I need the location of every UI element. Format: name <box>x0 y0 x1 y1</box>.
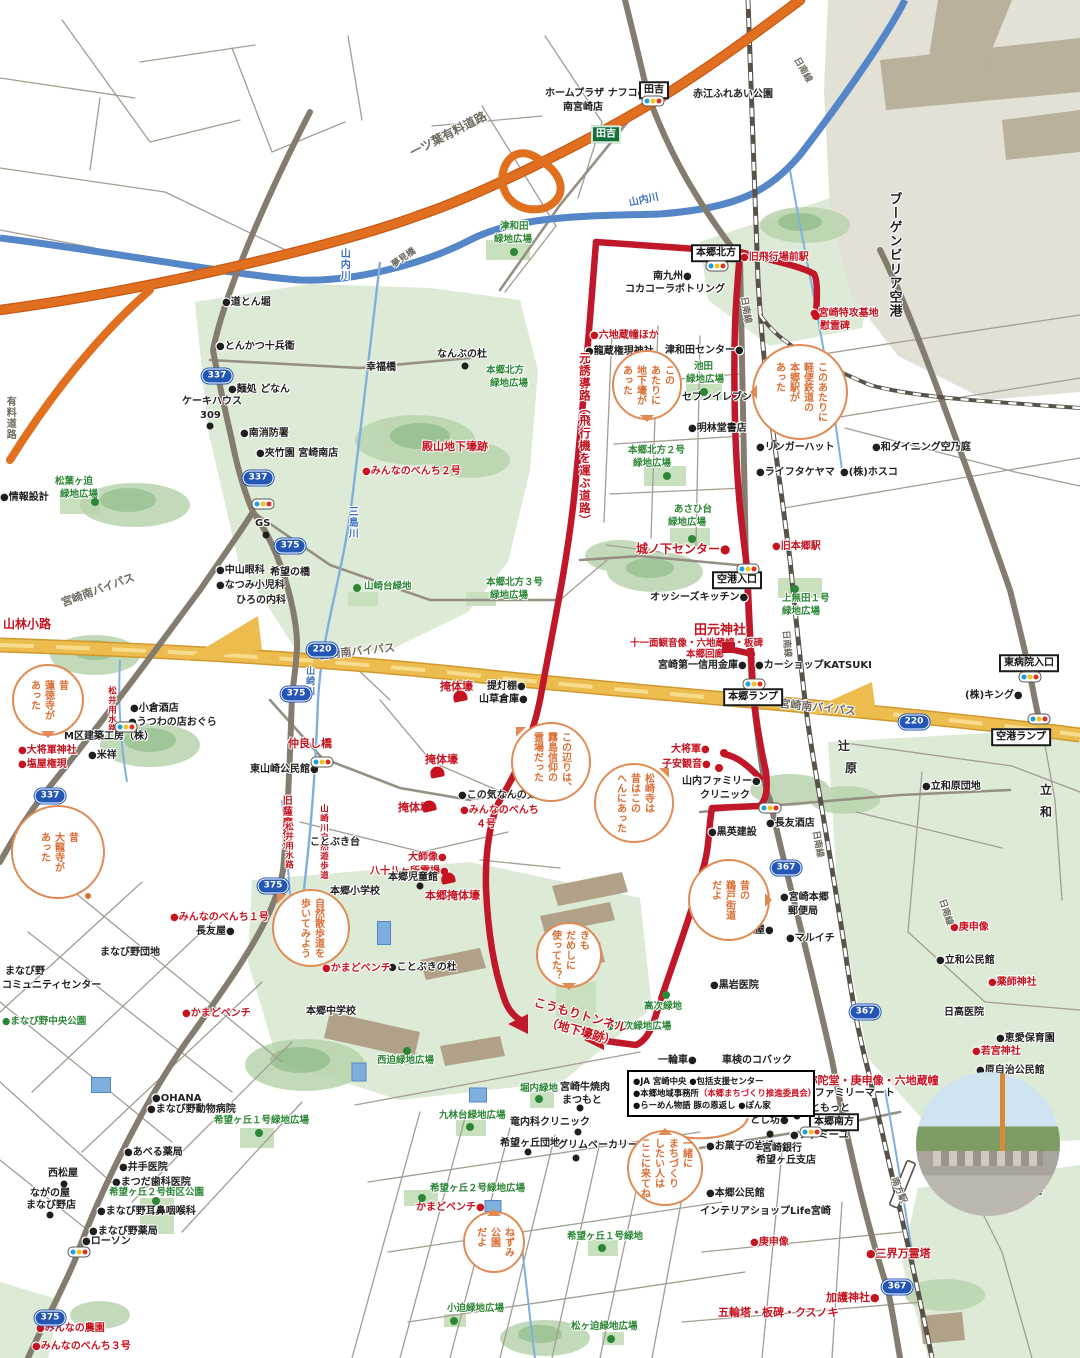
route-shield: 367 <box>771 861 802 876</box>
map-label: ●中山眼科 <box>216 565 265 576</box>
map-label: ●恵愛保育園 <box>996 1033 1055 1044</box>
annotation-text: 昔大龍寺があった <box>37 832 80 872</box>
map-label: ●なつみ小児科 <box>216 580 285 591</box>
map-label: グリムベーカリー <box>558 1140 638 1151</box>
map-label: ●大将軍神社 <box>18 745 77 756</box>
poi-dot <box>61 1181 68 1188</box>
map-label: 本郷中学校 <box>306 1006 356 1017</box>
map-label: 山草倉庫● <box>479 694 528 705</box>
map-label: 宮崎南バイパス <box>779 698 857 718</box>
map-label: かまどベンチ● <box>416 1202 485 1213</box>
map-label: ●塩屋権現 <box>18 759 67 770</box>
annotation-bubble: ねずみ公園だよ <box>463 1211 525 1273</box>
annotation-text: この辺りは、霧島信仰の霊場だった <box>530 732 573 792</box>
map-label: ４号 <box>476 819 496 830</box>
route-shield: 337 <box>202 369 233 384</box>
traffic-signal-icon <box>737 564 760 575</box>
map-label: 希望ヶ丘２号緑地広場 <box>430 1184 525 1195</box>
route-poi-dot <box>812 312 820 320</box>
traffic-signal-icon <box>68 1247 91 1258</box>
map-label: 本郷小学校 <box>330 886 380 897</box>
map-label: ●米祥 <box>88 750 117 761</box>
park-dot <box>152 1197 160 1205</box>
map-label: ●リンガーハット <box>756 442 835 453</box>
traffic-signal-icon <box>252 499 275 510</box>
park-dot <box>663 472 671 480</box>
annotation-pointer <box>640 415 654 429</box>
map-label: 希望ヶ丘１号緑地 <box>567 1232 643 1243</box>
map-label: 宮崎第一信用金庫● <box>658 660 747 671</box>
park-dot <box>353 584 361 592</box>
hangar-ruin-icon <box>429 765 445 779</box>
map-label: コミュニティセンター <box>2 980 101 991</box>
legend-line: ●らーめん物語 豚の恩返し ●ぽん家 <box>633 1099 809 1111</box>
annotation-bubble: 昔大龍寺があった <box>11 805 105 899</box>
annotation-pointer <box>41 731 55 745</box>
annotation-text: ねずみ公園だよ <box>473 1227 516 1257</box>
map-label: 山内川 <box>338 248 349 281</box>
map-label: ●みんなのべんち１号 <box>170 912 269 923</box>
poi-dot <box>47 1212 54 1219</box>
route-poi-dot <box>720 749 728 757</box>
park-dot <box>418 1194 426 1202</box>
map-label: クリニック <box>700 790 750 801</box>
poi-dot <box>525 1149 532 1156</box>
map-label: ●本郷公民館 <box>706 1188 765 1199</box>
map-label: 夢見橋 <box>390 247 418 271</box>
annotation-text: 昔蓮徳寺があった <box>27 680 70 720</box>
map-label: 幸福橋 <box>366 362 396 373</box>
park-dot <box>510 248 518 256</box>
pond <box>91 1077 111 1093</box>
map-label: 元誘導路（飛行機を運ぶ道路） <box>578 352 591 527</box>
map-label: 緑地広場 <box>490 591 528 602</box>
map-label: とし坊● <box>750 1115 789 1126</box>
map-label: 南方駅 <box>889 1176 908 1205</box>
map-label: 九林台緑地広場 <box>439 1111 506 1122</box>
park-dot <box>791 585 799 593</box>
route-shield: 337 <box>35 789 66 804</box>
map-label: 山内ファミリー● <box>682 776 761 787</box>
park-dot <box>450 1317 458 1325</box>
map-label: 本郷児童館 <box>388 872 438 883</box>
annotation-bubble: 昔の鵜戸街道だよ <box>688 859 770 941</box>
map-label: 西迫緑地広場 <box>377 1056 434 1067</box>
annotation-bubble: このあたりに軽便鉄道の本郷駅があった <box>752 344 848 440</box>
map-label: ●旧飛行場前駅 <box>740 252 809 263</box>
map-label: まなび野団地 <box>100 947 160 958</box>
map-label: ながの屋 <box>30 1188 70 1199</box>
annotation-pointer <box>506 717 526 737</box>
intersection-sign: 東病院入口 <box>999 654 1059 672</box>
poi-dot <box>207 423 214 430</box>
poi-dot <box>577 1105 584 1112</box>
map-label: ●マルイチ <box>786 933 835 944</box>
map-label: ●情報設計 <box>0 492 49 503</box>
poi-dot <box>462 363 469 370</box>
map-label: 提灯棚● <box>487 681 526 692</box>
map-label: 辻 <box>838 740 850 753</box>
route-shield: 375 <box>35 1311 66 1326</box>
map-label: ●ローソン <box>82 1236 131 1247</box>
map-label: ●みんなのべんち２号 <box>362 466 461 477</box>
traffic-signal-icon <box>759 803 782 814</box>
map-label: ●和ダイニング空乃庭 <box>872 442 971 453</box>
map-label: 加護神社● <box>826 1292 880 1304</box>
poi-dot <box>767 1131 774 1138</box>
map-label: 津和田センター● <box>665 345 744 356</box>
route-shield: 220 <box>307 643 338 658</box>
map-label: 309 <box>200 410 221 421</box>
map-label: ●庚申像 <box>950 922 989 933</box>
map-label: 緑地広場 <box>668 518 706 529</box>
map-label: ●まなび野中央公園 <box>2 1017 86 1028</box>
map-label: 山林小路 <box>3 618 51 631</box>
map-label: 松井用水路 <box>283 822 293 870</box>
map-label: 原 <box>845 762 857 775</box>
annotation-bubble: 松崎寺は昔はこのへんにあった <box>594 763 674 843</box>
map-label: まなび野 <box>5 966 45 977</box>
map-label: ●小倉酒店 <box>130 703 179 714</box>
map-label: 一ツ葉有料道路 <box>408 110 489 160</box>
map-label: 本郷北方２号 <box>628 446 685 457</box>
map-label: 三島川 <box>346 506 357 539</box>
annotation-bubble: 自然散歩道を歩いてみよう <box>272 889 350 967</box>
map-label: ●旧本郷駅 <box>772 541 821 552</box>
map-label: 車検のコバック <box>722 1055 792 1066</box>
map-label: 希望ヶ丘団地 <box>500 1138 560 1149</box>
annotation-pointer <box>743 385 757 399</box>
map-label: ●ファミリーマート <box>806 1088 895 1099</box>
map-label: 上無田１号 <box>782 594 830 605</box>
map-label: ●かまどベンチ <box>182 1008 251 1019</box>
map-label: ●まなび野動物病院 <box>147 1104 236 1115</box>
map-label: 山崎台緑地 <box>364 582 412 593</box>
map-label: 松ヶ迫緑地広場 <box>571 1322 638 1333</box>
map-label: 大師像● <box>408 852 447 863</box>
map-label: 緑地広場 <box>686 375 724 386</box>
map-label: 緑地広場 <box>633 459 671 470</box>
map-label: ●みんなのべんち <box>460 805 539 816</box>
map-label: ●宮崎本郷 <box>780 892 829 903</box>
map-label: 西松屋 <box>48 1168 78 1179</box>
legend-line: ●JA 宮崎中央 ●包括支援センター <box>633 1075 809 1087</box>
map-label: ●三界万霊塔 <box>866 1248 931 1260</box>
map-label: 南宮崎店 <box>563 102 603 113</box>
map-label: ●麺処 どなん <box>228 384 290 395</box>
map-label: 日南線 <box>791 56 813 84</box>
map-label: ●若宮神社 <box>972 1046 1021 1057</box>
route-shield: 367 <box>850 1005 881 1020</box>
park-dot <box>662 991 670 999</box>
legend-box: ●JA 宮崎中央 ●包括支援センター●本郷地域事務所（本郷まちづくり推進委員会）… <box>627 1070 815 1117</box>
map-label: 希望ヶ丘支店 <box>756 1155 816 1166</box>
annotation-text: このあたりに軽便鉄道の本郷駅があった <box>772 362 829 422</box>
pond <box>352 1063 367 1082</box>
annotation-text: きもだめしに使ってた？ <box>548 930 591 980</box>
map-label: 南九州● <box>653 271 692 282</box>
route-shield: 337 <box>243 471 274 486</box>
map-label: 緑地広場 <box>494 235 532 246</box>
legend-text: （本郷まちづくり推進委員会） <box>699 1088 816 1098</box>
map-label: ●ライフタケヤマ <box>756 467 835 478</box>
traffic-signal-icon <box>642 96 665 107</box>
park-dot <box>607 1335 615 1343</box>
legend-text: ●本郷地域事務所 <box>633 1088 699 1098</box>
park-dot <box>255 1129 263 1137</box>
map-label: ●宮崎特攻基地 <box>810 308 879 319</box>
map-label: ●あべる薬局 <box>124 1147 183 1158</box>
annotation-pointer <box>487 1202 501 1216</box>
legend-text: ●JA 宮崎中央 ●包括支援センター <box>633 1076 764 1086</box>
annotation-text: 松崎寺は昔はこのへんにあった <box>613 773 656 833</box>
map-label: ●OHANA <box>152 1093 201 1104</box>
map-label: 和 <box>1040 806 1052 819</box>
map-label: ●黒英建設 <box>708 827 757 838</box>
route-endpoint-marker <box>722 642 735 653</box>
legend-line: ●本郷地域事務所（本郷まちづくり推進委員会） <box>633 1087 809 1099</box>
annotation-text: このあたりに地下壕があった <box>619 365 676 405</box>
map-label: 城ノ下センター● <box>636 543 730 556</box>
map-label: ●立和原団地 <box>922 781 981 792</box>
traffic-signal-icon <box>743 679 766 690</box>
map-label: 緑地広場 <box>490 379 528 390</box>
annotation-pointer <box>562 983 576 997</box>
map-label: 仲良し橋 <box>288 738 332 750</box>
annotation-bubble: 昔蓮徳寺があった <box>12 664 84 736</box>
map-label: 緑地広場 <box>782 607 820 618</box>
map-label: 日南線 <box>738 296 753 324</box>
park-dot <box>535 1095 543 1103</box>
map-label: 日南線 <box>810 830 825 858</box>
park-dot <box>688 535 696 543</box>
annotation-text: 自然散歩道を歩いてみよう <box>297 898 326 958</box>
map-label: 慰霊碑 <box>820 321 850 332</box>
pond <box>469 1088 487 1103</box>
annotation-dot <box>85 893 91 899</box>
map-label: ●ことぶきの杜 <box>388 962 457 973</box>
map-label: 宮崎南バイパス <box>60 572 136 610</box>
map-label: 東山崎公民館● <box>250 764 319 775</box>
map-label: 高次緑地 <box>644 1002 682 1013</box>
map-label: 五輪塔・板碑・クスノキ <box>718 1307 839 1319</box>
map-label: 希望ヶ丘１号緑地広場 <box>214 1116 309 1127</box>
traffic-signal-icon <box>115 722 138 733</box>
map-label: オッシーズキッチン● <box>650 592 748 603</box>
park-dot <box>466 1123 474 1131</box>
map-label: ●黒岩医院 <box>710 980 759 991</box>
map-label: 殿山地下壕跡 <box>422 441 488 453</box>
map-label: 長友屋● <box>196 926 235 937</box>
traffic-signal-icon <box>1019 672 1042 683</box>
annotation-bubble: きもだめしに使ってた？ <box>536 922 602 988</box>
map-label: ●六地蔵幢ほか <box>590 330 659 341</box>
pond <box>377 921 391 945</box>
annotation-pointer <box>658 1121 672 1135</box>
route-shield: 367 <box>882 1280 913 1295</box>
map-label: ●うつわの店おぐら <box>128 717 217 728</box>
map-label: 本郷北方 <box>486 366 524 377</box>
map-label: 松葉ヶ迫 <box>55 477 93 488</box>
map-label: 小迫緑地広場 <box>447 1304 504 1315</box>
map-label: 郵便局 <box>788 906 818 917</box>
map-label: ●明林堂書店 <box>688 423 747 434</box>
annotation-pointer <box>765 893 779 907</box>
map-label: ●みんなのべんち３号 <box>32 1341 131 1352</box>
intersection-sign: 本郷北方 <box>691 244 741 262</box>
map-label: 日南線 <box>780 630 792 658</box>
map-label: インテリアショップLife宮崎 <box>700 1206 831 1217</box>
map-label: ●井手医院 <box>119 1162 168 1173</box>
map-label: 一輪車● <box>658 1055 697 1066</box>
map-label: コカコーラボトリング <box>625 284 725 295</box>
annotation-bubble: 一緒にまちづくりしたい人はここに来てね <box>627 1130 703 1206</box>
traffic-signal-icon <box>706 261 729 272</box>
map-label: ●夾竹園 宮崎南店 <box>256 448 338 459</box>
intersection-sign: 本郷ランプ <box>723 688 783 706</box>
poi-dot <box>417 883 424 890</box>
map-label: 本郷掩体壕 <box>425 890 480 902</box>
map-label: ●庚申像 <box>750 1237 789 1248</box>
map-label: 津和田 <box>500 222 529 233</box>
poi-dot <box>575 1129 582 1136</box>
map-label: 山内川 <box>628 192 660 209</box>
map-label: 宮崎牛焼肉 <box>560 1082 610 1093</box>
map-label: ●かまどベンチ <box>322 963 391 974</box>
map-label: 赤江ふれあい公園 <box>693 89 773 100</box>
map-label: (株)キング● <box>965 690 1023 701</box>
map-label: 本郷北方３号 <box>486 578 543 589</box>
park-dot <box>700 388 708 396</box>
walking-map: ホームプラザ ナフコ●南宮崎店赤江ふれあい公園一ツ葉有料道路有料道路山内川山内川… <box>0 0 1080 1358</box>
map-label: ●(株)ホスコ <box>840 467 898 478</box>
map-label: 堀内緑地 <box>520 1084 558 1095</box>
map-label: ●カーショップKATSUKI <box>755 660 872 671</box>
map-label: ブーゲンビリア空港 <box>886 192 901 318</box>
poi-dot <box>573 1155 580 1162</box>
annotation-text: 一緒にまちづくりしたい人はここに来てね <box>637 1138 694 1198</box>
traffic-signal-icon <box>1028 714 1051 725</box>
legend-text: ●らーめん物語 豚の恩返し ●ぽん家 <box>633 1100 771 1110</box>
map-label: ひろの内科 <box>236 595 286 606</box>
park-dot <box>403 1047 411 1055</box>
map-label: 田元神社 <box>694 624 746 639</box>
annotation-bubble: このあたりに地下壕があった <box>612 350 682 420</box>
route-shield: 220 <box>899 715 930 730</box>
map-label: 大将軍● <box>671 744 710 755</box>
map-label: ●南消防署 <box>240 428 289 439</box>
intersection-sign: 田吉 <box>591 125 621 143</box>
map-label: あさひ台 <box>674 505 712 516</box>
map-label: 立 <box>1040 784 1052 797</box>
route-poi-dot <box>715 764 723 772</box>
map-label: 池田 <box>694 362 713 373</box>
park-dot <box>91 498 99 506</box>
map-label: M区建築工房（株） <box>64 731 154 742</box>
annotation-bubble: この辺りは、霧島信仰の霊場だった <box>511 722 591 802</box>
map-label: ことぶき台 <box>310 837 360 848</box>
route-shield: 375 <box>275 539 306 554</box>
map-label: ホームプラザ ナフコ● <box>545 88 646 99</box>
traffic-signal-icon <box>800 1127 823 1138</box>
minamikata-station-photo <box>916 1072 1060 1216</box>
map-label: 掩体壕 <box>425 754 458 766</box>
map-label: 竜内科クリニック <box>510 1117 590 1128</box>
poi-dot <box>263 532 270 539</box>
map-label: 日南線 <box>936 898 954 927</box>
map-label: ●長友酒店 <box>766 818 815 829</box>
map-label: ●まなび野耳鼻咽喉科 <box>97 1206 196 1217</box>
map-label: ●立和公民館 <box>936 955 995 966</box>
map-label: 日高医院 <box>944 1007 984 1018</box>
traffic-signal-icon <box>311 757 334 768</box>
map-label: ●薬師神社 <box>988 977 1037 988</box>
map-label: 有料道路 <box>4 396 15 440</box>
park-dot <box>598 1244 606 1252</box>
annotation-text: 昔の鵜戸街道だよ <box>708 880 751 920</box>
map-label: まなび野店 <box>26 1200 76 1211</box>
intersection-sign: 空港ランプ <box>991 728 1051 746</box>
map-label: GS <box>255 518 270 529</box>
map-label: ケーキハウス <box>182 396 242 407</box>
map-label: ●とんかつ十兵衛 <box>216 341 295 352</box>
map-label: なんぶの杜 <box>437 349 487 360</box>
route-shield: 375 <box>281 687 312 702</box>
map-label: 希望の橋 <box>270 567 310 578</box>
map-label: 宮崎銀行 <box>762 1143 802 1154</box>
map-label: ●道とん堀 <box>222 297 271 308</box>
